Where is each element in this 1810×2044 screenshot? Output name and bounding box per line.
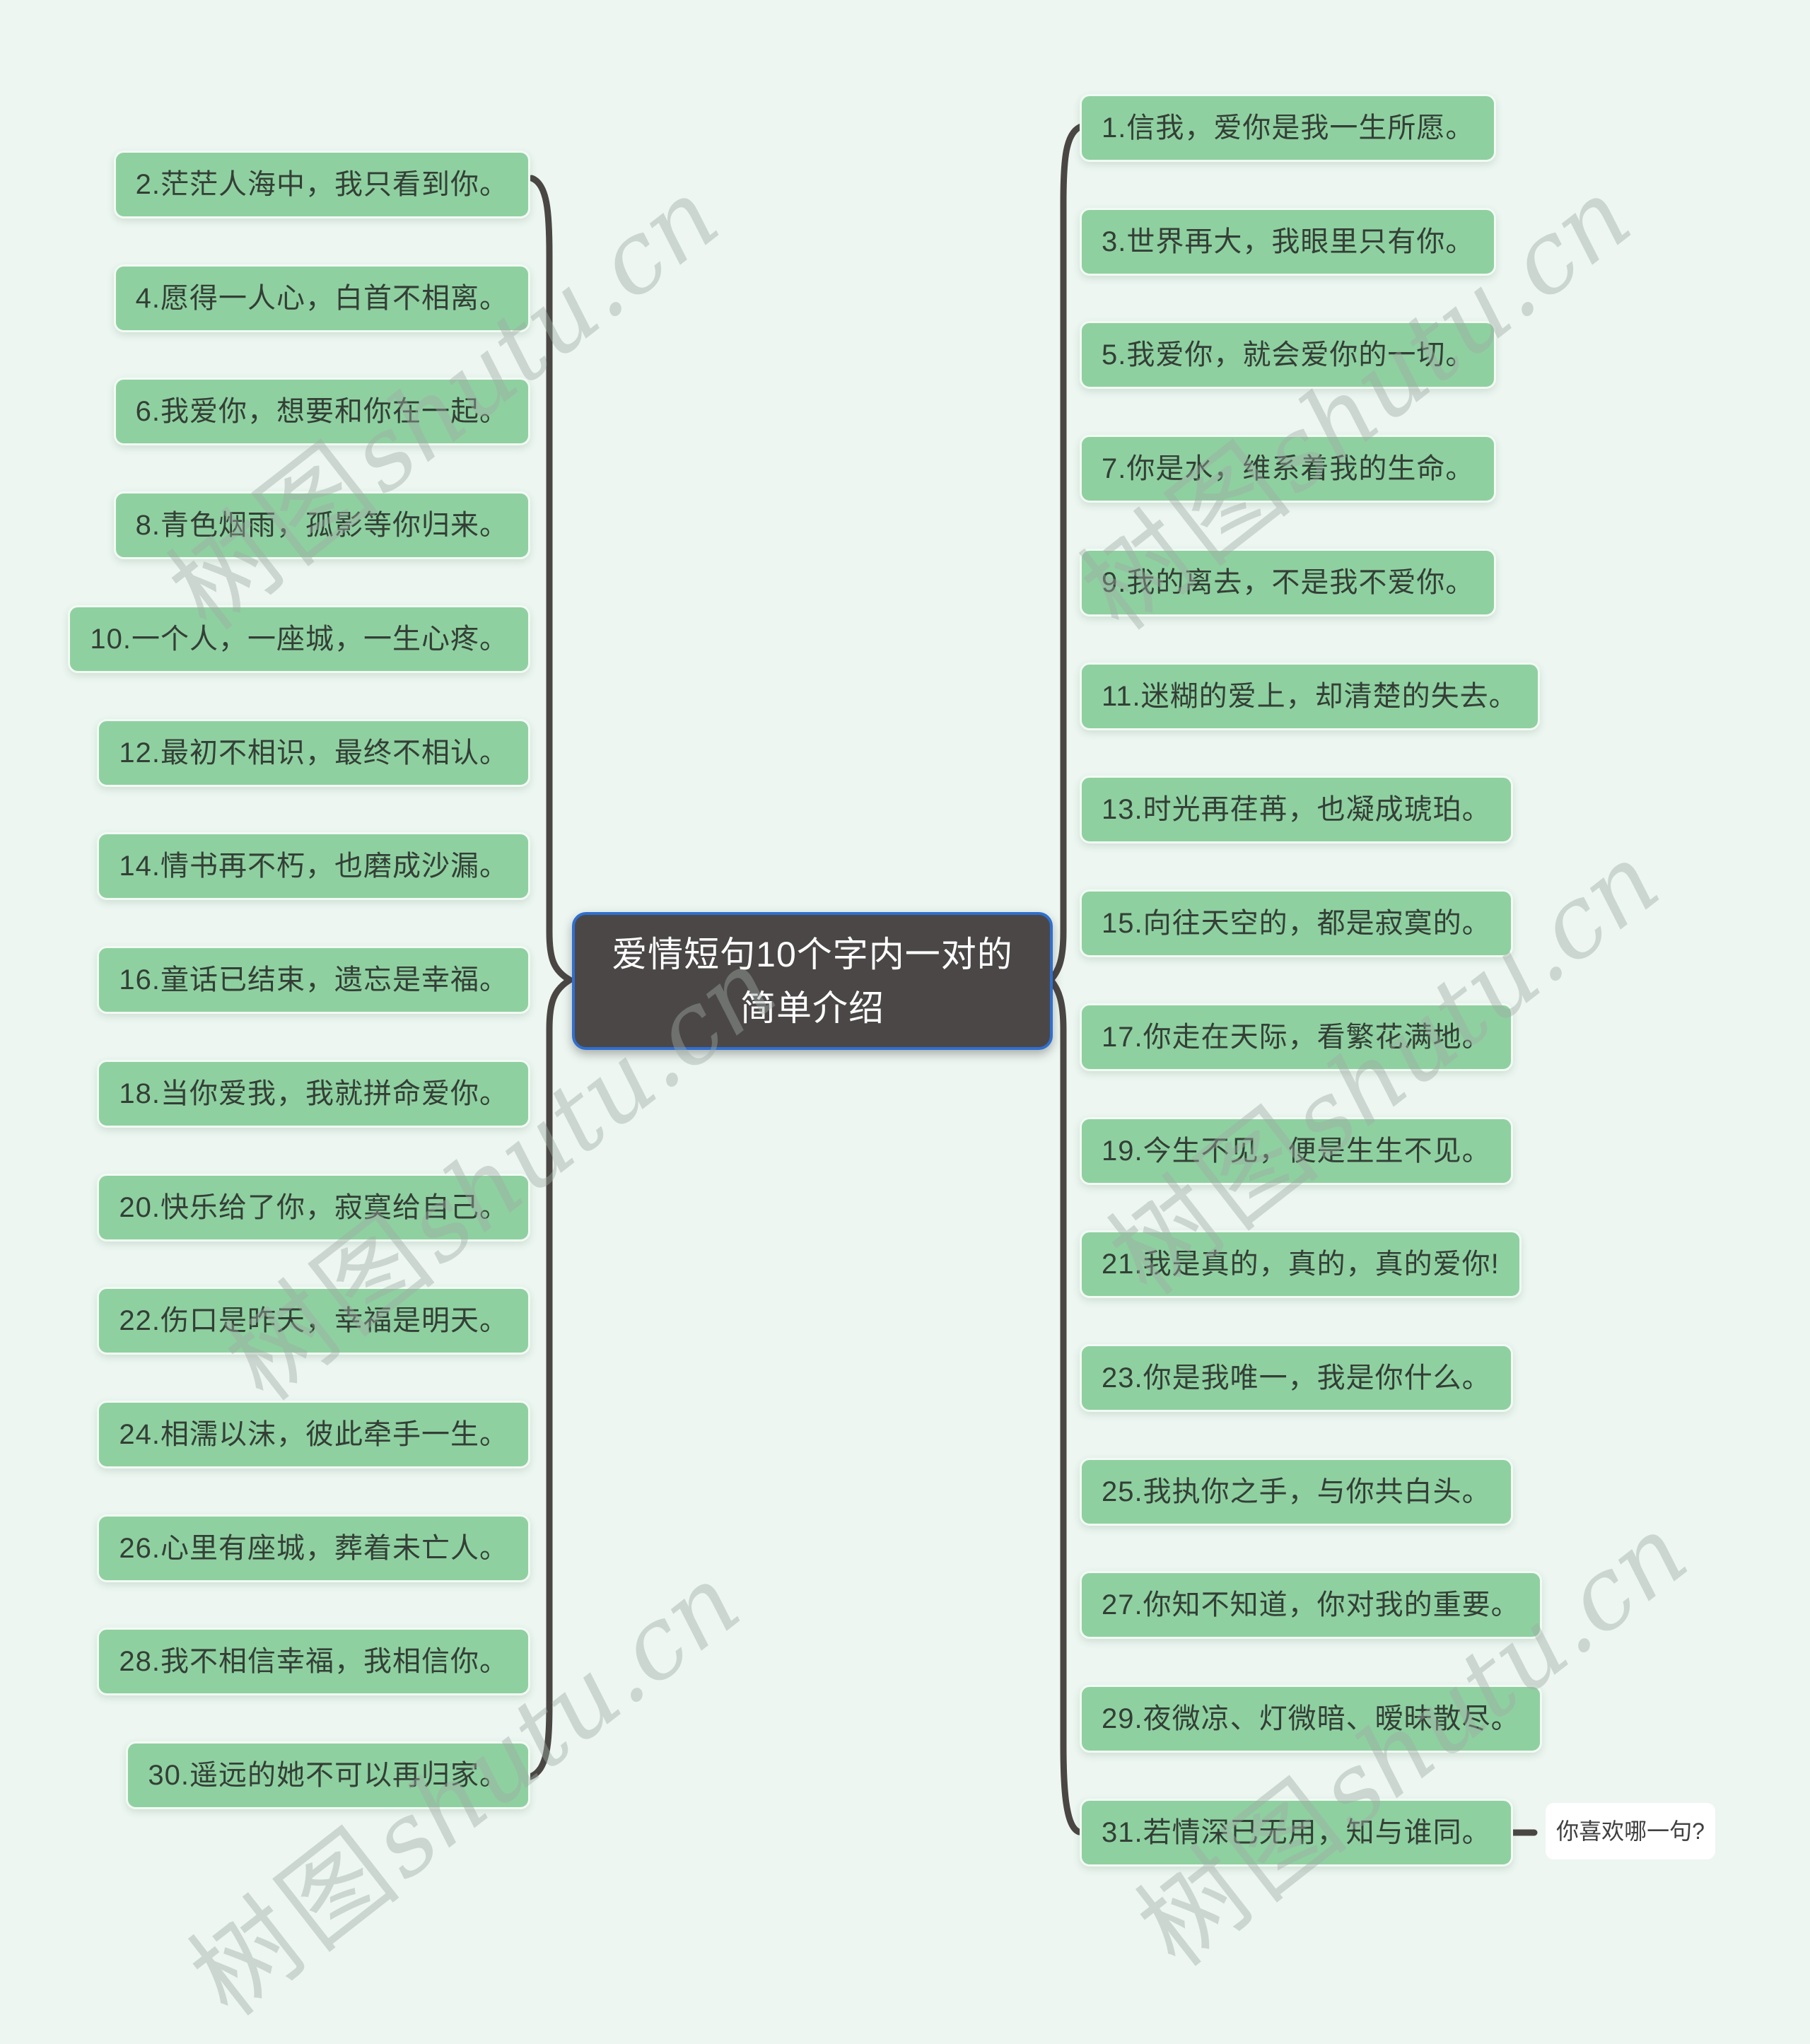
quote-item[interactable]: 2.茫茫人海中，我只看到你。 — [114, 151, 530, 218]
quote-item[interactable]: 13.时光再荏苒，也凝成琥珀。 — [1080, 776, 1513, 843]
quote-item[interactable]: 19.今生不见，便是生生不见。 — [1080, 1117, 1513, 1185]
quote-item[interactable]: 3.世界再大，我眼里只有你。 — [1080, 208, 1496, 276]
quote-item[interactable]: 10.一个人，一座城，一生心疼。 — [68, 605, 530, 673]
quote-item[interactable]: 15.向往天空的，都是寂寞的。 — [1080, 889, 1513, 957]
quote-item[interactable]: 4.愿得一人心，白首不相离。 — [114, 264, 530, 332]
central-topic-node[interactable]: 爱情短句10个字内一对的 简单介绍 — [572, 912, 1053, 1050]
right-brace — [1051, 127, 1081, 1832]
quote-item[interactable]: 14.情书再不朽，也磨成沙漏。 — [97, 832, 530, 900]
quote-item[interactable]: 7.你是水，维系着我的生命。 — [1080, 435, 1496, 503]
floating-note[interactable]: 你喜欢哪一句? — [1546, 1803, 1715, 1859]
quote-item[interactable]: 21.我是真的，真的，真的爱你! — [1080, 1230, 1522, 1298]
quote-item[interactable]: 1.信我，爱你是我一生所愿。 — [1080, 94, 1496, 162]
quote-item[interactable]: 29.夜微凉、灯微暗、暧昧散尽。 — [1080, 1685, 1542, 1753]
quote-item[interactable]: 9.我的离去，不是我不爱你。 — [1080, 549, 1496, 617]
quote-item[interactable]: 17.你走在天际，看繁花满地。 — [1080, 1003, 1513, 1071]
quote-item[interactable]: 16.童话已结束，遗忘是幸福。 — [97, 946, 530, 1014]
quote-item[interactable]: 18.当你爱我，我就拼命爱你。 — [97, 1060, 530, 1128]
quote-item[interactable]: 30.遥远的她不可以再归家。 — [126, 1741, 530, 1809]
quote-item[interactable]: 25.我执你之手，与你共白头。 — [1080, 1458, 1513, 1526]
central-topic-title-line2: 简单介绍 — [575, 981, 1050, 1035]
quote-item[interactable]: 20.快乐给了你，寂寞给自己。 — [97, 1174, 530, 1242]
quote-item[interactable]: 24.相濡以沫，彼此牵手一生。 — [97, 1401, 530, 1468]
quote-item[interactable]: 23.你是我唯一，我是你什么。 — [1080, 1344, 1513, 1412]
quote-item[interactable]: 11.迷糊的爱上，却清楚的失去。 — [1080, 662, 1540, 730]
central-topic-title-line1: 爱情短句10个字内一对的 — [575, 928, 1050, 981]
quote-item[interactable]: 22.伤口是昨天，幸福是明天。 — [97, 1287, 530, 1355]
left-brace — [530, 178, 570, 1777]
quote-item[interactable]: 5.我爱你，就会爱你的一切。 — [1080, 321, 1496, 389]
quote-item[interactable]: 6.我爱你，想要和你在一起。 — [114, 378, 530, 445]
quote-item[interactable]: 28.我不相信幸福，我相信你。 — [97, 1628, 530, 1695]
quote-item[interactable]: 27.你知不知道，你对我的重要。 — [1080, 1571, 1542, 1639]
quote-item[interactable]: 12.最初不相识，最终不相认。 — [97, 719, 530, 787]
quote-item[interactable]: 31.若情深已无用，知与谁同。 — [1080, 1799, 1513, 1867]
mindmap-canvas: 2.茫茫人海中，我只看到你。4.愿得一人心，白首不相离。6.我爱你，想要和你在一… — [0, 0, 1810, 1962]
quote-item[interactable]: 8.青色烟雨，孤影等你归来。 — [114, 491, 530, 559]
quote-item[interactable]: 26.心里有座城，葬着未亡人。 — [97, 1514, 530, 1582]
